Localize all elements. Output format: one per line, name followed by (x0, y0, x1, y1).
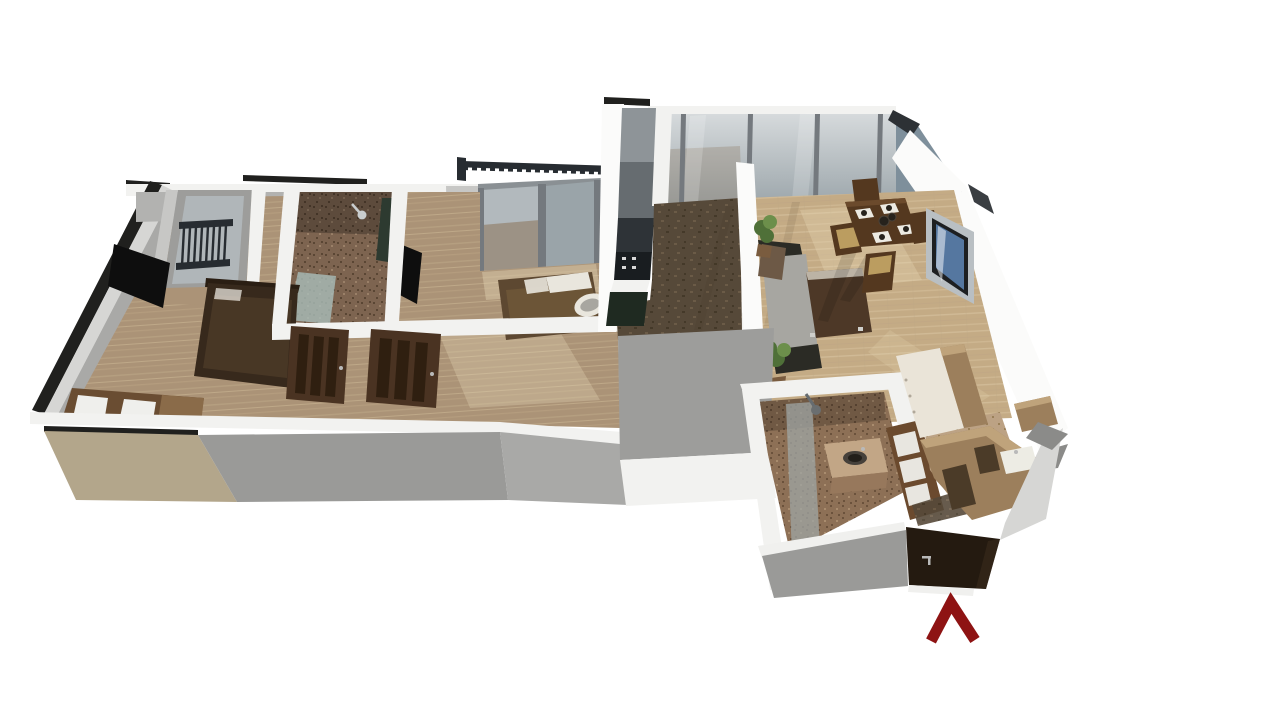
door-handle (928, 558, 931, 565)
cooktop (614, 252, 652, 280)
door-handle (339, 366, 343, 370)
bathroom-shadow (293, 192, 394, 235)
faucet (861, 447, 865, 451)
shower-head-icon (811, 405, 821, 415)
pillow (524, 277, 549, 294)
table-leg (858, 327, 863, 331)
plate-food (903, 226, 909, 232)
center-bowl (879, 216, 889, 226)
vanity-sink (824, 438, 888, 494)
wall-top-band (610, 280, 650, 294)
facade-gray (198, 432, 508, 502)
facade-gray (500, 432, 628, 505)
floorplan-3d-view[interactable] (0, 0, 1280, 720)
kitchen-cabinet-tall (620, 108, 658, 162)
kitchen-cabinet-tall (618, 162, 656, 218)
center-bowl (888, 213, 896, 221)
door-handle (430, 372, 434, 376)
plate-food (879, 234, 885, 240)
door-bathroom1 (286, 326, 349, 404)
plate-food (886, 205, 892, 211)
kitchen-counter-green (606, 292, 648, 326)
oven (616, 218, 654, 252)
desk-chair (74, 395, 108, 416)
shower-head-icon (358, 211, 367, 220)
door-bedroom2 (366, 329, 441, 408)
glass-reflection (482, 220, 540, 271)
bedroom2-glass-doors (478, 178, 602, 272)
floorplan-canvas[interactable] (0, 0, 1280, 720)
dining-chair (862, 251, 896, 293)
plate-food (861, 210, 867, 216)
pillow (214, 288, 242, 301)
table-leg (810, 333, 815, 337)
faucet (1014, 450, 1018, 454)
